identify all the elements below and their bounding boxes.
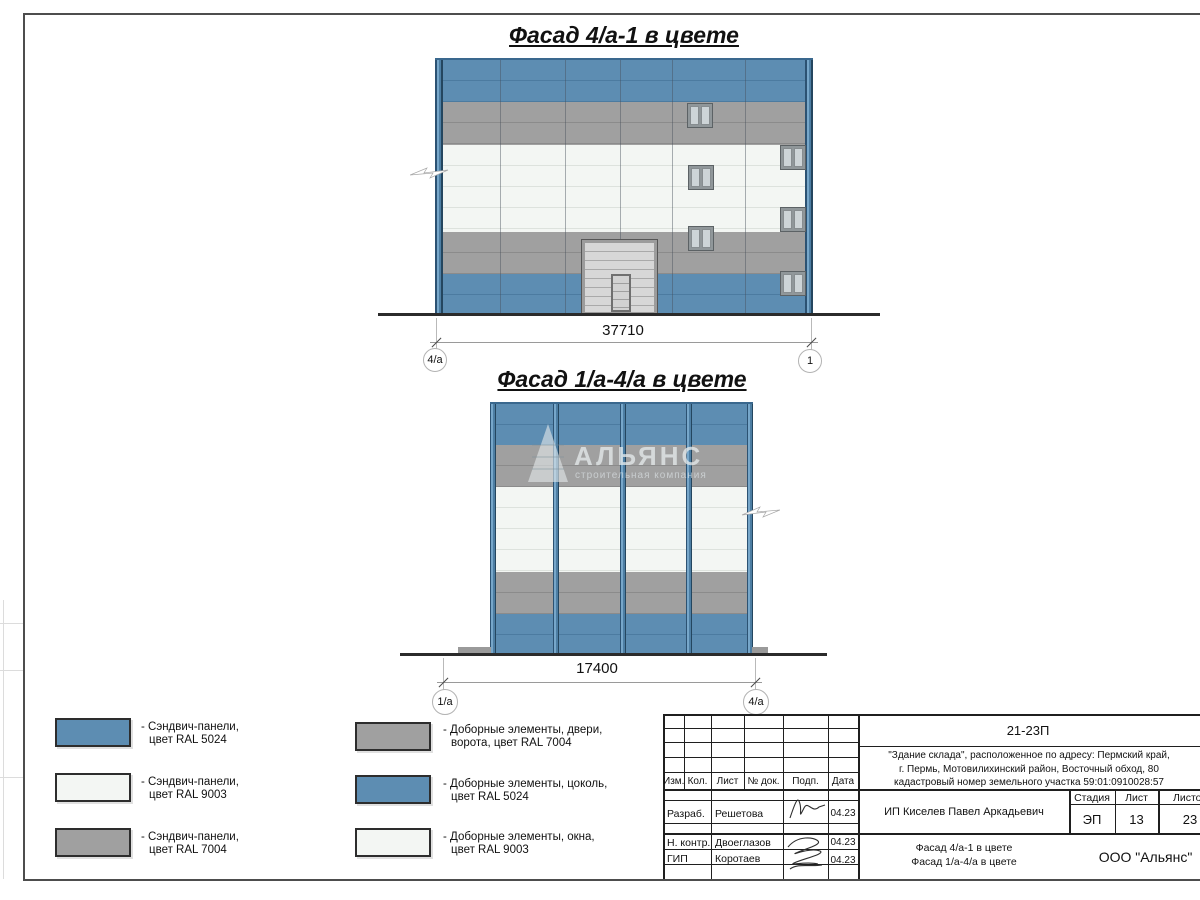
window	[780, 145, 806, 170]
axis-label: 4/а	[748, 696, 763, 708]
window-pane	[783, 210, 792, 229]
panel-band-white	[435, 145, 813, 232]
col-header-izm: Изм.	[663, 776, 684, 787]
dimension-line	[437, 682, 762, 683]
legend-line: цвет RAL 9003	[443, 844, 595, 857]
legend-label: - Сэндвич-панели, цвет RAL 7004	[141, 831, 239, 857]
facade1-title: Фасад 4/а-1 в цвете	[509, 22, 739, 49]
gate-wicket-door	[611, 274, 631, 312]
watermark-logo-icon	[528, 424, 568, 482]
dimension-line	[430, 342, 818, 343]
project-address: "Здание склада", расположенное по адресу…	[860, 749, 1198, 790]
person-name: Решетова	[715, 808, 763, 820]
sign-date: 04.23	[828, 855, 858, 866]
window	[688, 165, 714, 190]
legend-line: - Доборные элементы, двери,	[443, 724, 602, 737]
address-line: "Здание склада", расположенное по адресу…	[860, 749, 1198, 763]
window	[687, 103, 713, 128]
window-pane	[783, 148, 792, 167]
signature	[784, 833, 828, 875]
window-pane	[702, 168, 711, 187]
stage-value: ЭП	[1069, 812, 1115, 827]
address-line: г. Пермь, Мотовилихинский район, Восточн…	[860, 763, 1198, 777]
titleblock-line	[1069, 804, 1200, 805]
legend-label: - Сэндвич-панели, цвет RAL 5024	[141, 721, 239, 747]
sheets-value: 23	[1158, 812, 1200, 827]
panel-joint	[672, 60, 673, 313]
doc-number: 21-23П	[858, 723, 1198, 738]
ground-line	[378, 313, 880, 316]
address-line: кадастровый номер земельного участка 59:…	[860, 776, 1198, 790]
legend-line: - Доборные элементы, окна,	[443, 831, 595, 844]
company-name: ООО "Альянс"	[1069, 849, 1200, 865]
client-name: ИП Киселев Павел Аркадьевич	[860, 806, 1068, 818]
corner-pilaster	[435, 60, 443, 313]
col-header-kol: Кол.	[684, 776, 711, 787]
margin-strip-line	[0, 777, 23, 778]
legend-swatch-plinth-ral5024	[355, 775, 431, 804]
pilaster	[747, 404, 753, 653]
margin-strip-line	[0, 670, 23, 671]
panel-joint	[500, 60, 501, 313]
dimension-value: 37710	[602, 322, 644, 339]
legend-swatch-ral5024	[55, 718, 131, 747]
facade2-drawing: АЛЬЯНС строительная компания	[490, 402, 753, 653]
legend-line: цвет RAL 7004	[141, 844, 239, 857]
legend-swatch-windows-ral9003	[355, 828, 431, 857]
sheet-header: Лист	[1115, 792, 1158, 804]
axis-marker: 4/а	[743, 689, 769, 715]
sign-date: 04.23	[828, 837, 858, 848]
drawing-title-line: Фасад 1/а-4/а в цвете	[860, 855, 1068, 869]
legend-swatch-doors-ral7004	[355, 722, 431, 751]
axis-marker: 1	[798, 349, 822, 373]
axis-marker: 1/а	[432, 689, 458, 715]
window-pane	[691, 229, 700, 248]
window-pane	[794, 274, 803, 293]
dimension-value: 17400	[576, 660, 618, 677]
legend-line: - Сэндвич-панели,	[141, 721, 239, 734]
watermark-tagline: строительная компания	[575, 470, 707, 481]
sectional-gate	[582, 240, 657, 315]
legend-swatch-ral7004	[55, 828, 131, 857]
window-pane	[702, 229, 711, 248]
titleblock-border	[663, 714, 665, 879]
panel-joint	[565, 60, 566, 313]
ground-line	[400, 653, 827, 656]
stage-header: Стадия	[1069, 792, 1115, 804]
drawing-sheet: Фасад 4/а-1 в цвете 37710 4/а 1	[0, 0, 1200, 900]
legend-label: - Доборные элементы, окна, цвет RAL 9003	[443, 831, 595, 857]
sheets-header: Листов	[1158, 792, 1200, 804]
window-pane	[691, 168, 700, 187]
facade1-drawing	[435, 58, 813, 313]
window	[780, 271, 806, 296]
person-name: Коротаев	[715, 853, 760, 865]
pilaster	[490, 404, 496, 653]
titleblock-line	[711, 714, 712, 879]
facade2-title: Фасад 1/а-4/а в цвете	[497, 366, 746, 393]
axis-label: 4/а	[427, 354, 442, 366]
window	[780, 207, 806, 232]
window-pane	[794, 148, 803, 167]
role-label: Разраб.	[667, 808, 705, 820]
window-pane	[690, 106, 699, 125]
legend-swatch-ral9003	[55, 773, 131, 802]
legend-label: - Сэндвич-панели, цвет RAL 9003	[141, 776, 239, 802]
frame-top-border	[23, 13, 1200, 15]
role-label: Н. контр.	[667, 837, 710, 849]
person-name: Двоеглазов	[715, 837, 771, 849]
legend-label: - Доборные элементы, цоколь, цвет RAL 50…	[443, 778, 607, 804]
signature	[786, 794, 828, 822]
legend-line: ворота, цвет RAL 7004	[443, 737, 602, 750]
col-header-list: Лист	[711, 776, 744, 787]
axis-label: 1/а	[437, 696, 452, 708]
window-pane	[701, 106, 710, 125]
axis-label: 1	[807, 355, 813, 367]
titleblock-line	[858, 746, 1200, 747]
frame-left-border	[23, 13, 25, 881]
break-mark-icon	[740, 503, 780, 521]
watermark-name: АЛЬЯНС	[574, 441, 703, 472]
legend-label: - Доборные элементы, двери, ворота, цвет…	[443, 724, 602, 750]
sign-date: 04.23	[828, 808, 858, 819]
role-label: ГИП	[667, 853, 688, 865]
panel-band-blue	[435, 60, 813, 102]
frame-bottom-border	[23, 879, 1200, 881]
legend-line: - Сэндвич-панели,	[141, 776, 239, 789]
drawing-title-line: Фасад 4/а-1 в цвете	[860, 841, 1068, 855]
window-pane	[783, 274, 792, 293]
panel-band-gray	[435, 102, 813, 145]
titleblock-line	[663, 833, 1200, 835]
margin-strip-line	[3, 600, 4, 879]
legend-line: - Доборные элементы, цоколь,	[443, 778, 607, 791]
legend-line: - Сэндвич-панели,	[141, 831, 239, 844]
legend-line: цвет RAL 9003	[141, 789, 239, 802]
col-header-podp: Подп.	[783, 776, 828, 787]
panel-joint	[745, 60, 746, 313]
axis-marker: 4/а	[423, 348, 447, 372]
break-mark-icon	[410, 164, 450, 182]
window-pane	[794, 210, 803, 229]
drawing-title-cell: Фасад 4/а-1 в цвете Фасад 1/а-4/а в цвет…	[860, 841, 1068, 869]
legend-line: цвет RAL 5024	[141, 734, 239, 747]
corner-pilaster	[805, 60, 813, 313]
window	[688, 226, 714, 251]
margin-strip-line	[0, 623, 23, 624]
col-header-doc: № док.	[744, 776, 783, 787]
sheet-value: 13	[1115, 812, 1158, 827]
legend-line: цвет RAL 5024	[443, 791, 607, 804]
col-header-data: Дата	[828, 776, 858, 787]
